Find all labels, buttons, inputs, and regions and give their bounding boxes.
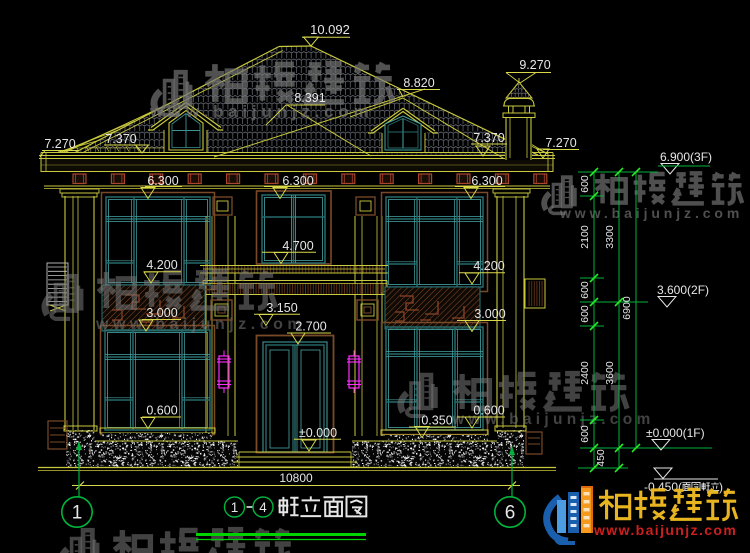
svg-text:2100: 2100 [579,225,591,249]
svg-text:600: 600 [579,175,591,193]
svg-text:-0.450(: -0.450( [644,480,682,494]
svg-text:7.370: 7.370 [473,131,504,145]
svg-text:www.baijunjz.com: www.baijunjz.com [559,205,743,221]
svg-text:2.700: 2.700 [295,320,326,334]
svg-text:6.300: 6.300 [471,174,502,188]
svg-text:6.300: 6.300 [147,174,178,188]
svg-text:3600: 3600 [604,361,616,385]
svg-text:6.300: 6.300 [282,174,313,188]
svg-text:0.600: 0.600 [146,404,177,418]
svg-text:600: 600 [579,281,591,299]
svg-text:www.baijunjz.com: www.baijunjz.com [593,522,737,538]
svg-text:1: 1 [231,500,239,515]
svg-text:7.270: 7.270 [545,136,576,150]
svg-text:www.baijunjz.com: www.baijunjz.com [149,102,374,121]
svg-text:7.370: 7.370 [105,132,136,146]
svg-text:6.900(3F): 6.900(3F) [660,150,712,164]
svg-text:6: 6 [505,503,516,524]
svg-text:4: 4 [259,500,267,515]
svg-text:3.150: 3.150 [266,301,297,315]
svg-text:6900: 6900 [621,296,633,320]
svg-text:7.270: 7.270 [44,137,75,151]
svg-text:600: 600 [579,305,591,323]
svg-text:3.000: 3.000 [474,307,505,321]
svg-text:2400: 2400 [579,361,591,385]
svg-text:3.600(2F): 3.600(2F) [657,283,709,297]
svg-text:4.700: 4.700 [282,239,313,253]
svg-text:10800: 10800 [279,471,313,485]
svg-text:8.391: 8.391 [294,91,325,105]
svg-text:±0.000(1F): ±0.000(1F) [646,426,705,440]
svg-text:3.000: 3.000 [146,306,177,320]
svg-text:450: 450 [595,449,607,467]
svg-text:4.200: 4.200 [146,258,177,272]
svg-text:): ) [719,480,723,494]
svg-text:0.600: 0.600 [473,404,504,418]
svg-text:9.270: 9.270 [519,58,550,72]
svg-text:600: 600 [579,425,591,443]
svg-text:3300: 3300 [604,225,616,249]
svg-text:0.350: 0.350 [421,414,452,428]
svg-text:8.820: 8.820 [403,76,434,90]
svg-text:±0.000: ±0.000 [299,426,337,440]
svg-text:4.200: 4.200 [473,259,504,273]
svg-text:1: 1 [72,503,83,524]
svg-text:www.baijunjz.com: www.baijunjz.com [95,316,306,333]
svg-text:10.092: 10.092 [310,22,350,37]
